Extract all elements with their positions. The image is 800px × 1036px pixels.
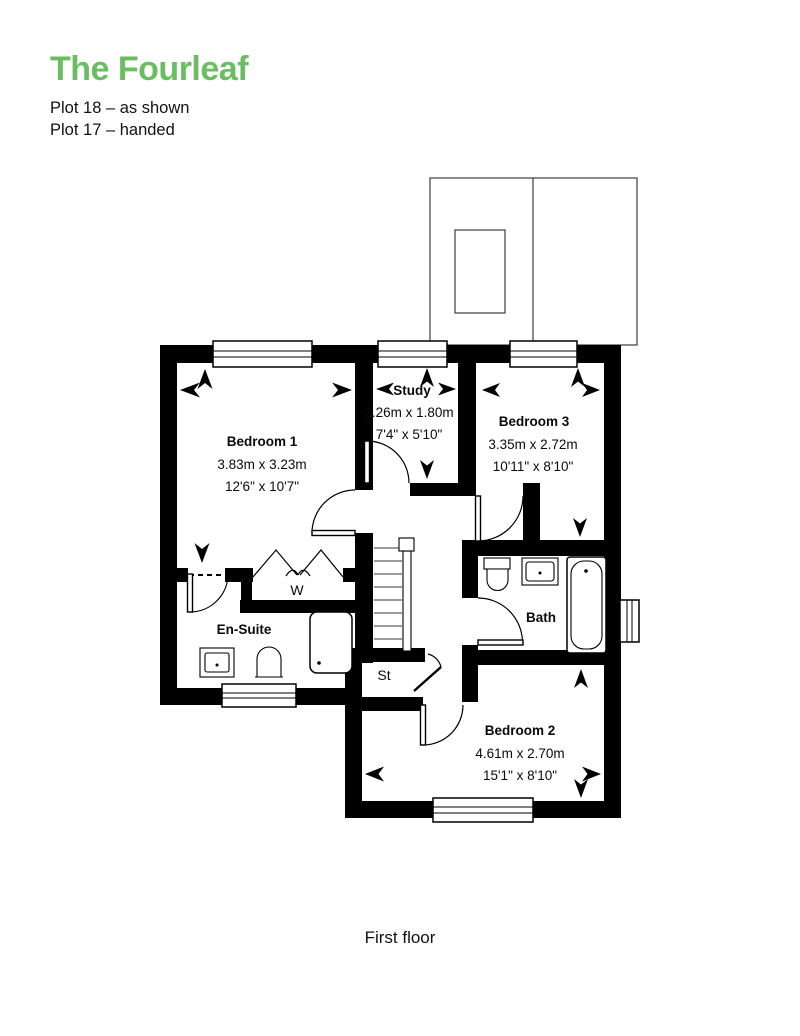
bifold-doors-wardrobe	[253, 550, 343, 577]
stairs	[374, 538, 414, 651]
window-study	[378, 341, 447, 367]
arrow-right	[438, 383, 456, 396]
floor-plan-drawing: Bedroom 1 3.83m x 3.23m 12'6" x 10'7" St…	[0, 0, 800, 1036]
arrow-left	[482, 383, 500, 397]
room-label-bath: Bath	[526, 610, 556, 625]
room-dims-imperial-study: 7'4" x 5'10"	[376, 427, 443, 442]
room-dims-metric-bedroom2: 4.61m x 2.70m	[475, 746, 564, 761]
toilet-icon	[484, 558, 510, 591]
arrow-left	[376, 383, 394, 396]
room-dims-imperial-bedroom2: 15'1" x 8'10"	[483, 768, 557, 783]
window-bath	[620, 600, 639, 642]
basin-icon	[200, 648, 234, 677]
door-ensuite	[188, 574, 229, 612]
arrow-down	[420, 460, 434, 479]
arrow-right	[332, 383, 352, 398]
window-ensuite	[222, 684, 296, 707]
arrow-down	[573, 518, 587, 537]
arrow-up	[574, 669, 588, 688]
room-dims-metric-study: 2.26m x 1.80m	[364, 405, 453, 420]
arrow-up	[198, 369, 213, 389]
floorplan-page: The Fourleaf Plot 18 – as shown Plot 17 …	[0, 0, 800, 1036]
room-label-bedroom3: Bedroom 3	[499, 414, 570, 429]
door-bath	[478, 598, 523, 645]
stair-newel-post	[399, 538, 414, 551]
arrow-right	[582, 383, 600, 397]
window-bedroom1	[213, 341, 312, 367]
room-dims-metric-bedroom3: 3.35m x 2.72m	[488, 437, 577, 452]
floor-caption: First floor	[0, 928, 800, 948]
room-label-bedroom2: Bedroom 2	[485, 723, 556, 738]
room-label-wardrobe: W	[290, 582, 304, 598]
door-bedroom2	[421, 705, 464, 745]
bathtub-icon	[567, 557, 606, 653]
room-dims-imperial-bedroom1: 12'6" x 10'7"	[225, 479, 299, 494]
room-label-study: Study	[393, 383, 431, 398]
roof-outline	[430, 178, 637, 345]
arrow-right	[582, 767, 601, 782]
window-bedroom2	[433, 798, 533, 822]
room-label-store: St	[377, 667, 390, 683]
room-dims-metric-bedroom1: 3.83m x 3.23m	[217, 457, 306, 472]
door-bedroom3	[476, 496, 524, 541]
room-label-ensuite: En-Suite	[217, 622, 272, 637]
arrow-down	[195, 543, 210, 563]
toilet-icon	[255, 647, 283, 677]
arrow-down	[574, 779, 588, 798]
door-bedroom1	[312, 490, 355, 536]
arrow-up	[571, 368, 585, 387]
window-bedroom3	[510, 341, 577, 367]
arrow-left	[365, 767, 384, 782]
stair-handrail	[403, 551, 411, 651]
arrow-left	[180, 383, 200, 398]
shower-icon	[310, 612, 352, 673]
room-dims-imperial-bedroom3: 10'11" x 8'10"	[493, 459, 574, 474]
basin-icon	[522, 558, 558, 585]
room-label-bedroom1: Bedroom 1	[227, 434, 298, 449]
